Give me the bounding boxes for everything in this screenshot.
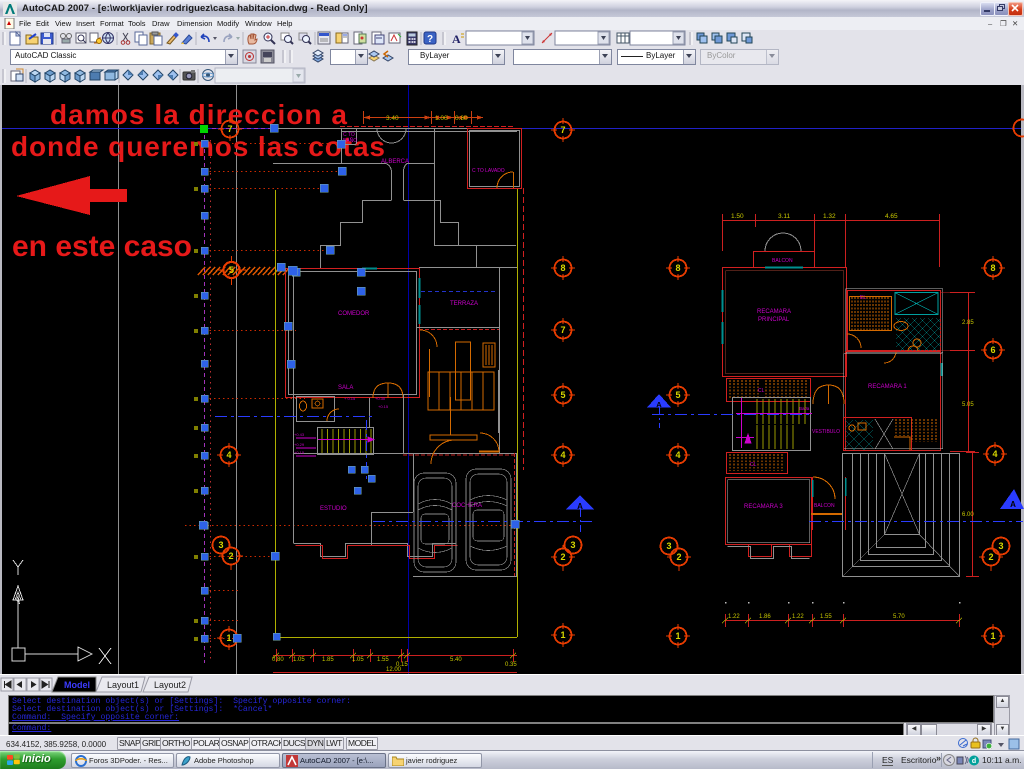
svg-text:1.55: 1.55 — [377, 657, 389, 663]
svg-text:1.86: 1.86 — [759, 614, 771, 620]
svg-text:1: 1 — [560, 630, 565, 640]
svg-text:+0.15: +0.15 — [378, 404, 389, 409]
svg-text:C TO LAVADO: C TO LAVADO — [472, 168, 505, 174]
svg-text:Model: Model — [64, 680, 90, 690]
svg-text:1.00: 1.00 — [435, 115, 448, 122]
svg-text:4.65: 4.65 — [885, 213, 898, 220]
svg-text:1: 1 — [226, 633, 231, 643]
svg-text:damos la direccion a: damos la direccion a — [50, 99, 347, 130]
svg-text:+0.29: +0.29 — [294, 442, 305, 447]
svg-text:+0.30: +0.30 — [375, 396, 386, 401]
svg-text:+ 0.15: + 0.15 — [344, 396, 356, 401]
svg-text:4: 4 — [226, 450, 231, 460]
svg-text:3: 3 — [218, 540, 223, 550]
svg-text:COCHERA: COCHERA — [452, 503, 482, 509]
svg-text:CL: CL — [758, 388, 765, 394]
svg-text:3: 3 — [998, 541, 1003, 551]
svg-text:RECAMARA 3: RECAMARA 3 — [744, 504, 783, 510]
svg-text:TERRAZA: TERRAZA — [450, 301, 478, 307]
svg-text:5: 5 — [675, 390, 680, 400]
svg-text:CL: CL — [750, 462, 757, 468]
svg-text:ESTUDIO: ESTUDIO — [320, 506, 347, 512]
svg-text:8: 8 — [675, 263, 680, 273]
svg-text:4: 4 — [560, 450, 565, 460]
svg-text:Layout2: Layout2 — [154, 680, 186, 690]
svg-text:5: 5 — [560, 390, 565, 400]
svg-text:+0.15: +0.15 — [294, 450, 305, 455]
svg-text:3: 3 — [570, 540, 575, 550]
svg-text:1: 1 — [990, 631, 995, 641]
svg-text:SALA: SALA — [338, 385, 353, 391]
svg-text:1.05: 1.05 — [293, 657, 305, 663]
svg-text:5: 5 — [229, 265, 234, 275]
svg-text:donde queremos las cotas: donde queremos las cotas — [11, 131, 385, 162]
svg-text:1.22: 1.22 — [728, 614, 740, 620]
svg-text:A: A — [656, 400, 662, 409]
svg-text:BaJa: BaJa — [799, 406, 810, 411]
svg-text:12.00: 12.00 — [386, 667, 402, 673]
svg-text:3.40: 3.40 — [386, 115, 399, 122]
svg-text:2: 2 — [676, 552, 681, 562]
svg-text:1.32: 1.32 — [823, 213, 836, 220]
svg-text:5.70: 5.70 — [893, 614, 905, 620]
svg-text:6: 6 — [990, 345, 995, 355]
svg-text:ALBERCA: ALBERCA — [381, 159, 409, 165]
svg-text:1.50: 1.50 — [731, 213, 744, 220]
svg-text:d: d — [972, 758, 976, 765]
svg-text:7: 7 — [560, 325, 565, 335]
svg-text:A: A — [452, 32, 461, 46]
svg-text:2: 2 — [988, 552, 993, 562]
svg-text:2.85: 2.85 — [962, 320, 974, 326]
svg-text:2: 2 — [560, 552, 565, 562]
svg-text:VESTIBULO: VESTIBULO — [812, 429, 840, 435]
svg-text:0.80: 0.80 — [455, 115, 468, 122]
svg-text:8: 8 — [560, 263, 565, 273]
svg-text:A: A — [577, 502, 583, 511]
svg-text:RECAMARA: RECAMARA — [757, 309, 791, 315]
svg-text:7: 7 — [560, 125, 565, 135]
svg-text:1.85: 1.85 — [322, 657, 334, 663]
svg-text:1: 1 — [675, 631, 680, 641]
svg-text:0.35: 0.35 — [505, 662, 517, 668]
svg-text:1.05: 1.05 — [352, 657, 364, 663]
svg-text:8: 8 — [990, 263, 995, 273]
svg-text:2: 2 — [228, 551, 233, 561]
svg-text:EL: EL — [860, 295, 866, 301]
svg-text:A: A — [1010, 500, 1016, 509]
svg-text:en este caso: en este caso — [12, 230, 192, 263]
svg-text:3: 3 — [666, 541, 671, 551]
svg-text:5.40: 5.40 — [450, 657, 462, 663]
svg-text:4: 4 — [992, 449, 997, 459]
svg-text:BALCON: BALCON — [814, 503, 835, 509]
svg-text:COMEDOR: COMEDOR — [338, 311, 370, 317]
svg-text:6.00: 6.00 — [962, 512, 974, 518]
svg-text:3.11: 3.11 — [778, 213, 791, 220]
svg-text:5.05: 5.05 — [962, 402, 974, 408]
svg-text:BALCON: BALCON — [772, 258, 793, 264]
svg-text:7: 7 — [227, 124, 232, 134]
svg-text:PRINCIPAL: PRINCIPAL — [758, 317, 790, 323]
svg-text:+0.43: +0.43 — [294, 432, 305, 437]
svg-text:RECAMARA 1: RECAMARA 1 — [868, 384, 907, 390]
svg-text:?: ? — [427, 34, 433, 45]
svg-text:4: 4 — [675, 450, 680, 460]
svg-text:1.55: 1.55 — [820, 614, 832, 620]
svg-text:0.80: 0.80 — [272, 657, 284, 663]
svg-text:Layout1: Layout1 — [107, 680, 139, 690]
svg-text:1.22: 1.22 — [792, 614, 804, 620]
